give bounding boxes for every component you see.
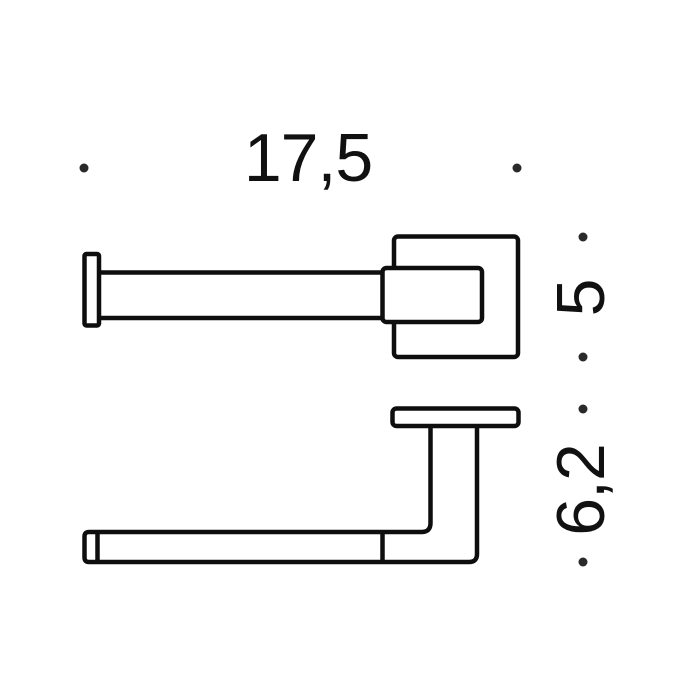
width-dimension-label: 17,5 — [244, 124, 372, 192]
holder-arm-front-view — [85, 426, 478, 562]
technical-drawing-page: 17,5 5 6,2 — [0, 0, 700, 700]
wall-plate-edge-front-view — [393, 409, 519, 427]
front-view — [85, 409, 519, 563]
plate-dimension-label: 5 — [547, 280, 615, 317]
height-dimension-dot-bottom — [579, 558, 588, 567]
width-dimension-dot-right — [513, 164, 522, 173]
plate-dimension-dot-top — [579, 233, 588, 242]
technical-drawing-canvas — [0, 0, 700, 700]
bar-mount-connector-top-view — [383, 268, 483, 322]
plate-dimension-dot-bottom — [579, 353, 588, 362]
height-dimension-label: 6,2 — [547, 444, 615, 536]
top-view — [85, 237, 519, 358]
height-dimension-dot-top — [579, 405, 588, 414]
width-dimension-dot-left — [80, 164, 89, 173]
holder-bar-top-view — [97, 273, 383, 319]
dimension-dots — [80, 164, 588, 567]
bar-end-cap-top-view — [85, 254, 100, 326]
